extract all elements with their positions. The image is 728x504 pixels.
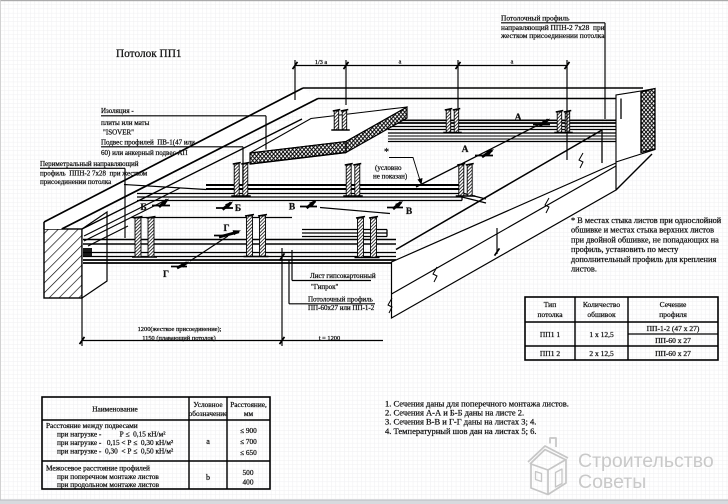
svg-text:a: a — [511, 59, 514, 66]
svg-text:Периметральный направляющий: Периметральный направляющий — [40, 160, 139, 168]
svg-text:В: В — [289, 203, 296, 213]
svg-text:жестком присоединении потолка: жестком присоединении потолка — [500, 31, 605, 40]
svg-text:а: а — [206, 437, 210, 446]
svg-text:Наименование: Наименование — [92, 405, 137, 414]
svg-text:ПП-60 х 27: ПП-60 х 27 — [655, 336, 691, 345]
svg-text:Г: Г — [163, 270, 169, 280]
svg-text:ПП-60 х 27: ПП-60 х 27 — [655, 349, 691, 358]
svg-text:Расстояние,: Расстояние, — [230, 400, 267, 409]
svg-text:Строительство: Строительство — [578, 450, 714, 472]
svg-text:Сечение: Сечение — [660, 300, 687, 309]
svg-text:Условное: Условное — [193, 400, 222, 409]
svg-text:ПП1 2: ПП1 2 — [540, 349, 560, 358]
svg-text:присоединении потолка: присоединении потолка — [40, 178, 112, 186]
svg-text:≤ 700: ≤ 700 — [240, 437, 257, 446]
svg-text:* В местах стыка листов при од: * В местах стыка листов при однослойной — [571, 216, 722, 225]
svg-text:обшивок: обшивок — [587, 310, 616, 319]
svg-text:Советы: Советы — [578, 471, 646, 493]
svg-text:*: * — [384, 147, 389, 158]
svg-text:при нагрузке - 0,30 < Р ≤ 0: при нагрузке - 0,30 < Р ≤ 0,50 кН/м² — [57, 447, 174, 456]
svg-text:ПП-60х27 или ПП-1-2: ПП-60х27 или ПП-1-2 — [308, 304, 375, 312]
svg-text:"Гипрок": "Гипрок" — [311, 283, 339, 291]
svg-text:обшивке и местах стыка верхних: обшивке и местах стыка верхних листов — [571, 226, 714, 235]
svg-text:Потолочный профиль: Потолочный профиль — [501, 14, 570, 23]
svg-text:1 х 12,5: 1 х 12,5 — [589, 330, 614, 339]
svg-text:t = 1200: t = 1200 — [319, 335, 340, 342]
svg-text:1200(жесткое присоединение);: 1200(жесткое присоединение); — [138, 326, 222, 333]
svg-text:ПП-1-2 (47 х 27): ПП-1-2 (47 х 27) — [647, 324, 700, 333]
svg-text:(условно: (условно — [375, 164, 402, 172]
svg-text:Потолочный профиль: Потолочный профиль — [308, 296, 373, 304]
svg-text:ПП1 1: ПП1 1 — [540, 330, 560, 339]
svg-text:обозначение: обозначение — [189, 409, 228, 418]
svg-text:a: a — [399, 59, 402, 66]
svg-text:А: А — [462, 145, 469, 155]
svg-text:при продольном монтаже листов: при продольном монтаже листов — [57, 480, 160, 489]
svg-text:профиль, установить по месту: профиль, установить по месту — [571, 245, 679, 254]
svg-text:профиль ППН-2 7х28 при жестк: профиль ППН-2 7х28 при жестком — [40, 170, 148, 178]
svg-text:плиты или маты: плиты или маты — [101, 119, 150, 127]
svg-text:Подвес профилей ПВ-1(47 или: Подвес профилей ПВ-1(47 или — [101, 139, 195, 147]
svg-text:2 х 12,5: 2 х 12,5 — [589, 349, 614, 358]
svg-text:листов.: листов. — [571, 265, 597, 274]
svg-text:Потолок ПП1: Потолок ПП1 — [116, 48, 182, 60]
svg-text:Б: Б — [235, 204, 241, 214]
svg-text:потолка: потолка — [537, 310, 563, 319]
svg-text:60) или анкерный подвес АП: 60) или анкерный подвес АП — [101, 149, 188, 157]
svg-text:1/3 a: 1/3 a — [315, 59, 327, 66]
svg-text:Б: Б — [140, 203, 146, 213]
svg-text:при двойной обшивке, не попада: при двойной обшивке, не попадающих на — [571, 235, 719, 244]
svg-text:дополнительный профиль для кре: дополнительный профиль для крепления — [571, 255, 716, 264]
svg-text:Тип: Тип — [544, 300, 556, 309]
svg-text:≤ 900: ≤ 900 — [240, 426, 257, 435]
svg-text:Количество: Количество — [583, 300, 620, 309]
svg-text:500: 500 — [243, 468, 254, 477]
svg-text:профиля: профиля — [659, 310, 687, 319]
svg-text:"ISOVER": "ISOVER" — [103, 129, 134, 137]
svg-text:b: b — [206, 473, 210, 482]
svg-text:Г: Г — [223, 224, 229, 234]
svg-text:400: 400 — [243, 478, 254, 487]
svg-text:4. Температурный шов дан на ли: 4. Температурный шов дан на листах 5; 6. — [385, 426, 536, 436]
svg-text:А: А — [515, 113, 522, 123]
svg-text:мм: мм — [244, 409, 254, 418]
svg-text:Изоляция -: Изоляция - — [101, 107, 134, 115]
svg-text:Лист гипсокартонный: Лист гипсокартонный — [310, 272, 376, 280]
svg-text:1150 (плавающий потолок): 1150 (плавающий потолок) — [142, 335, 216, 342]
svg-text:≤ 650: ≤ 650 — [240, 448, 257, 457]
svg-text:не показан): не показан) — [373, 173, 408, 181]
svg-text:В: В — [406, 207, 413, 217]
